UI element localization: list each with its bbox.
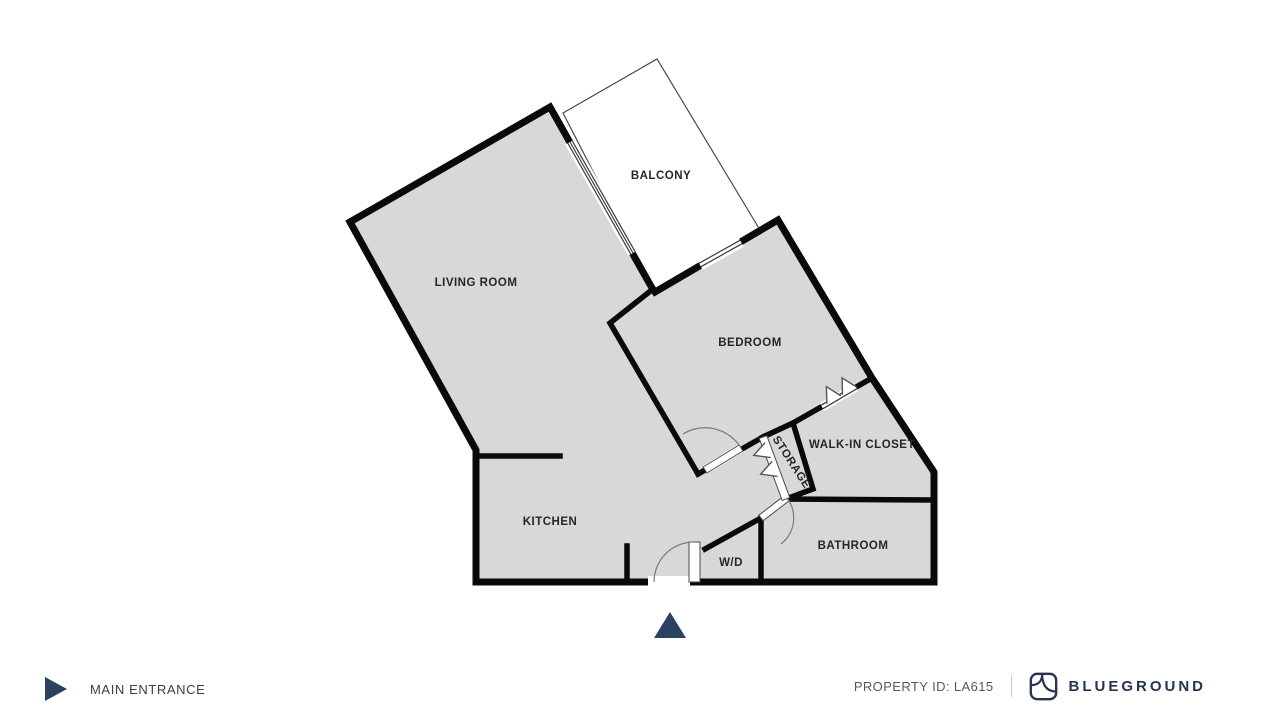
room-label-walk-in-closet: WALK-IN CLOSET (809, 439, 915, 451)
brand-name: BLUEGROUND (1069, 678, 1207, 695)
footer-right: PROPERTY ID: LA615 BLUEGROUND (854, 666, 1206, 706)
footer-divider (1011, 675, 1012, 697)
room-label-balcony: BALCONY (631, 170, 691, 182)
entrance-door-leaf (689, 542, 700, 582)
main-entrance-legend: MAIN ENTRANCE (45, 677, 205, 701)
floorplan: LIVING ROOM BALCONY BEDROOM WALK-IN CLOS… (0, 0, 1280, 720)
entrance-triangle-icon (45, 677, 67, 701)
entrance-marker-icon (654, 612, 686, 638)
blueground-logo-icon (1029, 672, 1058, 701)
room-label-bathroom: BATHROOM (818, 540, 889, 552)
room-label-bedroom: BEDROOM (718, 337, 782, 349)
room-label-living-room: LIVING ROOM (435, 277, 518, 289)
room-label-wd: W/D (719, 557, 743, 569)
brand-lockup: BLUEGROUND (1029, 672, 1207, 701)
main-entrance-label: MAIN ENTRANCE (90, 682, 205, 697)
property-id-label: PROPERTY ID: LA615 (854, 679, 994, 694)
room-label-kitchen: KITCHEN (523, 516, 578, 528)
